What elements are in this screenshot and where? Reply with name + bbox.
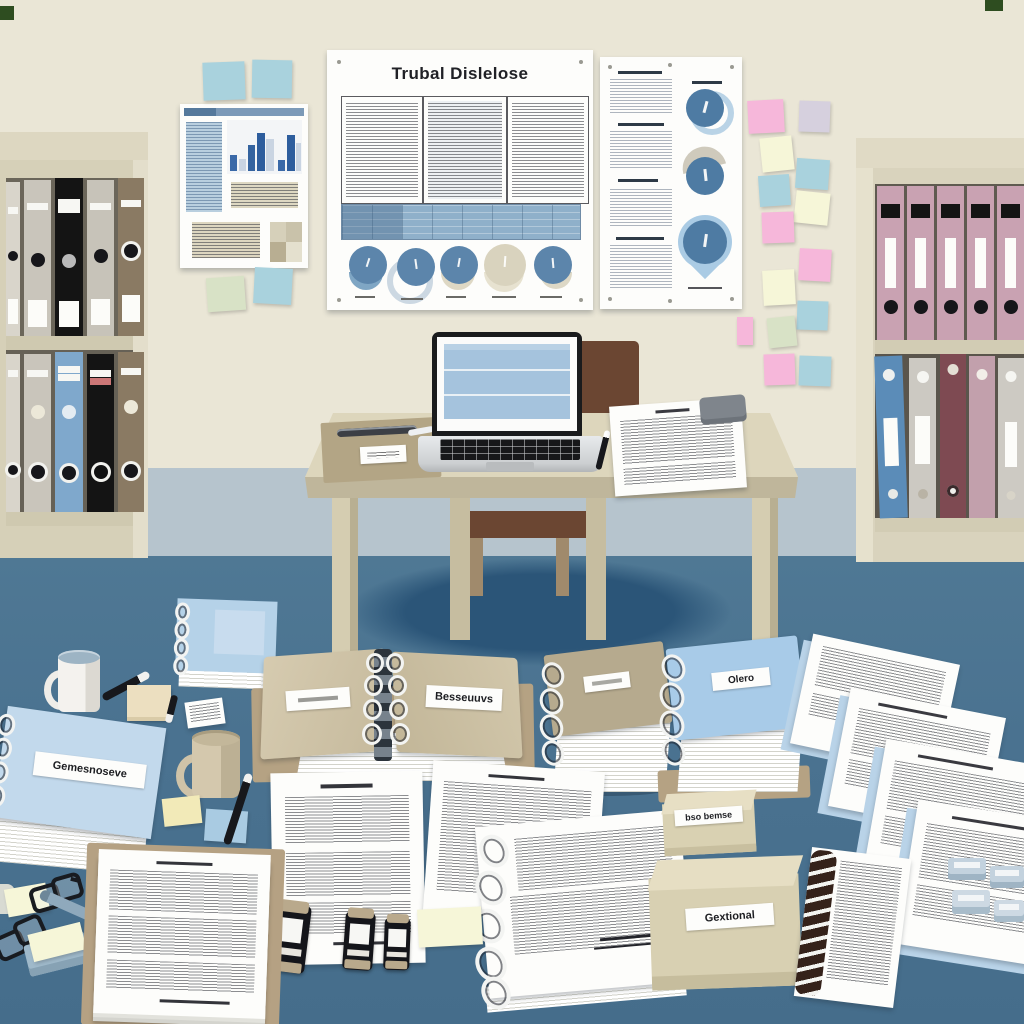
bar <box>266 139 274 171</box>
bar-chart <box>227 120 302 174</box>
binder <box>997 186 1024 340</box>
text-column <box>507 96 589 204</box>
binder <box>907 186 934 340</box>
pin-chart <box>678 211 734 295</box>
content-divider <box>444 394 570 396</box>
sticky-note <box>202 61 245 100</box>
doc-text <box>286 851 411 897</box>
tab-slot <box>954 862 980 868</box>
name-plate <box>360 445 407 464</box>
corner-mark <box>0 6 14 20</box>
blue-binder-stack: Olero <box>660 642 808 794</box>
beige-mug <box>176 730 242 800</box>
scribble-line <box>298 696 338 703</box>
poster-header-label <box>184 108 216 116</box>
binder-tab <box>1001 204 1020 218</box>
tab-clip <box>948 858 986 880</box>
caption-line <box>401 298 423 300</box>
binder <box>118 178 144 336</box>
mug-body <box>58 656 100 712</box>
pin-icon <box>730 65 734 69</box>
sticky-note <box>747 99 785 134</box>
sticky-note <box>759 135 794 172</box>
content-divider <box>444 369 570 371</box>
screen-content <box>444 344 570 419</box>
shelf-board <box>6 512 133 526</box>
binder <box>969 356 995 518</box>
binder <box>87 180 114 336</box>
card-text <box>189 702 221 724</box>
office-illustration: Trubal Dislelose <box>0 0 1024 1024</box>
sticky-note <box>798 100 830 132</box>
pin-icon <box>579 298 583 302</box>
text-group <box>610 179 672 227</box>
chair-seat <box>459 511 595 538</box>
binder <box>874 356 908 519</box>
sticky-note <box>758 174 791 207</box>
text-lines <box>610 189 672 227</box>
clip-cap <box>387 914 409 924</box>
pin-icon <box>668 299 672 303</box>
doc-title-line <box>321 784 373 789</box>
data-table <box>341 204 581 240</box>
binder <box>24 180 51 336</box>
doc-text <box>285 795 410 845</box>
sticky-note <box>793 190 830 225</box>
binder <box>24 354 51 512</box>
binder <box>6 354 20 512</box>
beige-text-block <box>188 218 264 262</box>
content-row-highlight <box>444 344 570 350</box>
heading-line <box>692 81 722 84</box>
sticky-note <box>252 60 293 99</box>
scribble-line <box>592 678 622 686</box>
binder <box>909 358 936 518</box>
shelf-board <box>6 336 133 350</box>
desk-leg <box>450 498 470 640</box>
chair-leg <box>556 538 569 596</box>
pin-icon <box>668 63 672 67</box>
desk-leg <box>752 498 778 655</box>
clip-cap <box>348 907 375 919</box>
binder-clip <box>383 918 411 971</box>
sticky-note <box>761 211 794 243</box>
pin-icon <box>337 298 341 302</box>
text-column <box>423 96 507 204</box>
screen-panel <box>437 337 577 431</box>
pin-icon <box>608 297 612 301</box>
tab-slot <box>999 904 1019 910</box>
binder <box>967 186 994 340</box>
text-group <box>610 237 672 289</box>
tab-slot <box>995 870 1019 876</box>
shelf-board <box>875 340 1024 354</box>
phone <box>699 394 747 425</box>
binder <box>55 352 83 512</box>
beige-text-block <box>227 178 302 212</box>
pen-tray <box>337 425 417 437</box>
text-group <box>610 123 672 169</box>
heading-line <box>618 179 658 182</box>
binder-clip <box>342 911 376 971</box>
binder <box>87 354 114 512</box>
doc-title-line <box>655 408 689 413</box>
binder <box>118 352 144 512</box>
sticky-note <box>253 267 293 305</box>
shelf-board <box>875 518 1024 532</box>
doc-footer-line <box>160 999 230 1004</box>
heading-line <box>618 123 664 126</box>
right-bookshelf <box>856 138 1024 562</box>
pie-chart-group <box>532 246 576 302</box>
caption-line <box>446 296 466 298</box>
text-column <box>341 96 423 204</box>
sticky-note <box>762 269 796 306</box>
bar <box>296 143 301 171</box>
sticky-note <box>417 906 483 947</box>
caption-line <box>355 296 375 298</box>
swatch <box>270 242 286 262</box>
doc-text <box>109 869 258 914</box>
bar <box>230 155 237 171</box>
heading-line <box>618 71 662 74</box>
left-poster <box>180 104 308 268</box>
left-bookshelf <box>0 132 148 558</box>
doc-text <box>106 959 255 994</box>
sticky-note <box>798 355 831 386</box>
bar <box>248 145 255 171</box>
tab-slot <box>958 895 984 901</box>
binder <box>937 186 964 340</box>
mug-rim <box>192 730 240 746</box>
bar <box>278 160 285 171</box>
shelf-side-panel <box>856 138 873 562</box>
doc-text <box>107 915 256 958</box>
desk-leg <box>332 498 358 655</box>
donut-chart <box>680 149 734 203</box>
shelf-top <box>856 138 1024 168</box>
large-box: Gextional <box>648 855 802 990</box>
tab-clip <box>994 900 1024 922</box>
caption-line <box>688 287 722 289</box>
sticky-note <box>797 300 829 330</box>
sticky-note <box>737 317 753 345</box>
clip-base <box>385 961 407 970</box>
right-cover-label: Besseuuvs <box>425 685 502 711</box>
caption-line <box>540 296 562 298</box>
sticky-note <box>767 316 798 349</box>
mug-liquid <box>58 650 100 664</box>
bar <box>257 133 265 171</box>
laptop-base <box>418 436 603 472</box>
pie-chart-group <box>437 246 481 302</box>
scribble-line <box>367 451 399 459</box>
sticky-note <box>798 248 832 282</box>
pie-chart-group <box>347 246 391 302</box>
binder-tab <box>911 204 930 218</box>
clip-base <box>344 959 371 970</box>
tab-clip <box>990 866 1024 888</box>
corner-mark <box>985 0 1003 11</box>
bar <box>287 135 295 171</box>
pin-icon <box>730 297 734 301</box>
text-lines <box>610 131 672 169</box>
desk-leg <box>586 498 606 640</box>
text-group <box>610 71 672 115</box>
blue-text-block <box>186 122 222 212</box>
binder-tab <box>971 204 990 218</box>
sticky-note <box>206 276 246 313</box>
binder-tab <box>941 204 960 218</box>
small-box: bso bemse <box>661 790 756 857</box>
sticky-pad <box>127 685 171 717</box>
note-card <box>184 697 225 728</box>
text-lines <box>610 79 672 115</box>
doc-body-text <box>623 461 736 487</box>
binder <box>940 354 966 518</box>
bar <box>239 159 246 171</box>
shelf-top <box>0 132 148 160</box>
box-side <box>648 873 802 990</box>
clip-band <box>387 952 407 958</box>
caption-line <box>492 296 516 298</box>
binder-tab <box>881 204 900 218</box>
clip-label <box>349 923 370 944</box>
swatch <box>286 242 302 262</box>
heading-line <box>616 237 664 240</box>
sticky-note <box>763 353 795 385</box>
binder <box>6 182 20 336</box>
doc-title-line <box>156 861 212 866</box>
table-header-cell <box>342 205 402 239</box>
pin-icon <box>608 65 612 69</box>
laptop-screen <box>432 332 582 438</box>
binder <box>55 178 83 336</box>
center-poster: Trubal Dislelose <box>327 50 593 310</box>
swatch-grid <box>270 222 302 262</box>
sticky-note <box>162 795 203 827</box>
poster-title: Trubal Dislelose <box>327 64 593 84</box>
document-stack <box>93 849 271 1019</box>
text-lines <box>610 245 672 289</box>
dark-spiral-document <box>779 845 918 1018</box>
laptop-trackpad <box>486 462 534 471</box>
laptop-keyboard <box>440 439 580 460</box>
chair-leg <box>470 538 483 596</box>
white-mug <box>44 648 100 714</box>
clip-label <box>388 929 407 948</box>
sticky-note <box>795 158 830 190</box>
pie-chart-group <box>391 248 437 304</box>
box-top <box>647 855 803 890</box>
binder <box>998 358 1024 518</box>
binder <box>877 186 904 340</box>
doc-title-line <box>488 774 544 781</box>
clip-band <box>347 949 369 957</box>
pie-chart-group <box>482 244 530 302</box>
right-poster <box>600 57 742 309</box>
donut-chart <box>682 81 734 135</box>
laptop <box>418 328 603 474</box>
tab-clip <box>952 890 990 914</box>
